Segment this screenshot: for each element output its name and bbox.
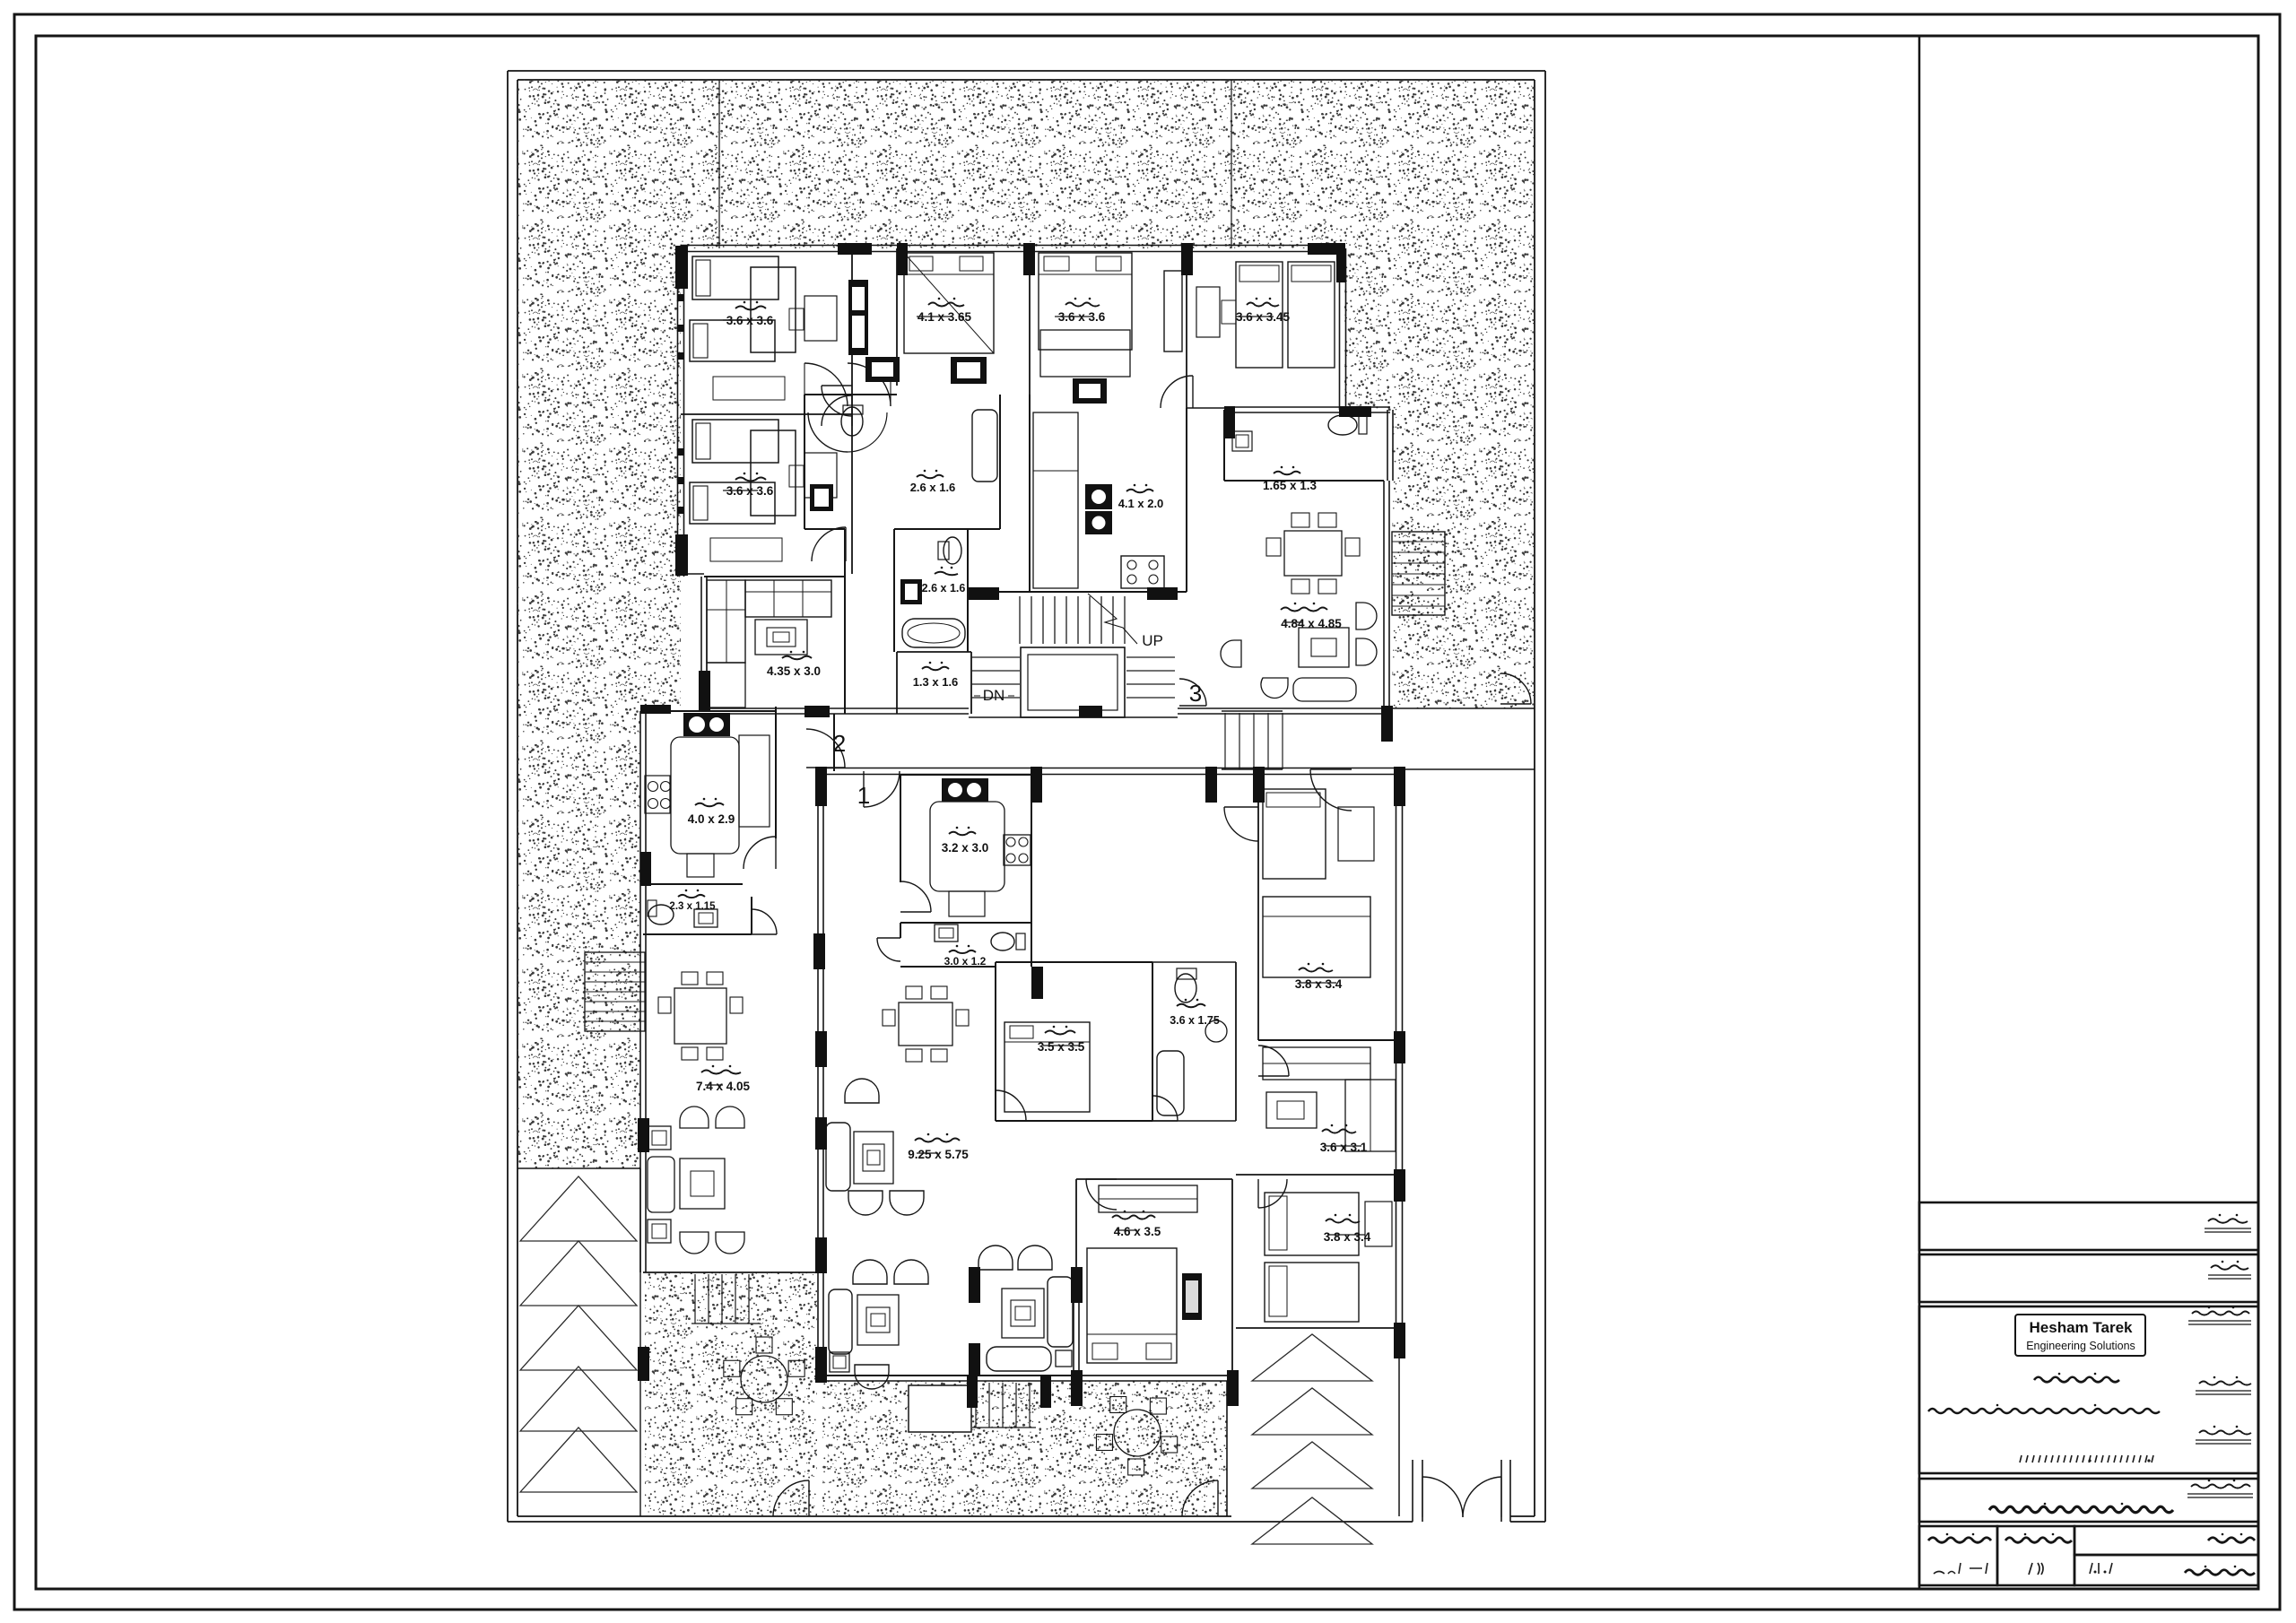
svg-text:4.0 x 2.9: 4.0 x 2.9 — [688, 812, 735, 826]
svg-text:Hesham Tarek: Hesham Tarek — [2030, 1319, 2134, 1336]
svg-text:DN: DN — [983, 687, 1005, 704]
svg-text:3.2 x 3.0: 3.2 x 3.0 — [942, 841, 989, 855]
svg-text:4.84 x 4.85: 4.84 x 4.85 — [1281, 617, 1342, 630]
svg-text:3.8 x 3.4: 3.8 x 3.4 — [1324, 1230, 1371, 1244]
svg-text:3.8 x 3.4: 3.8 x 3.4 — [1295, 977, 1343, 991]
svg-text:2.6 x 1.6: 2.6 x 1.6 — [922, 582, 966, 595]
svg-text:7.4 x 4.05: 7.4 x 4.05 — [696, 1080, 751, 1093]
svg-text:3: 3 — [1189, 680, 1202, 707]
svg-text:3.6 x 1.75: 3.6 x 1.75 — [1170, 1014, 1220, 1027]
svg-text:2.6 x 1.6: 2.6 x 1.6 — [910, 481, 956, 494]
svg-text:4.6 x 3.5: 4.6 x 3.5 — [1114, 1225, 1161, 1238]
svg-text:4.35 x 3.0: 4.35 x 3.0 — [767, 664, 821, 678]
svg-text:3.0 x 1.2: 3.0 x 1.2 — [944, 955, 987, 968]
svg-text:1.3 x 1.6: 1.3 x 1.6 — [913, 675, 959, 689]
svg-text:Engineering Solutions: Engineering Solutions — [2026, 1340, 2135, 1352]
svg-text:UP: UP — [1142, 632, 1163, 649]
svg-text:1: 1 — [857, 782, 870, 809]
svg-text:1.65 x 1.3: 1.65 x 1.3 — [1263, 479, 1318, 492]
svg-text:3.5 x 3.5: 3.5 x 3.5 — [1038, 1040, 1085, 1054]
svg-text:3.6 x 3.1: 3.6 x 3.1 — [1320, 1141, 1368, 1154]
svg-text:4.1 x 2.0: 4.1 x 2.0 — [1118, 497, 1164, 510]
svg-text:2.3 x 1.15: 2.3 x 1.15 — [669, 901, 716, 912]
svg-text:9.25 x 5.75: 9.25 x 5.75 — [908, 1148, 969, 1161]
